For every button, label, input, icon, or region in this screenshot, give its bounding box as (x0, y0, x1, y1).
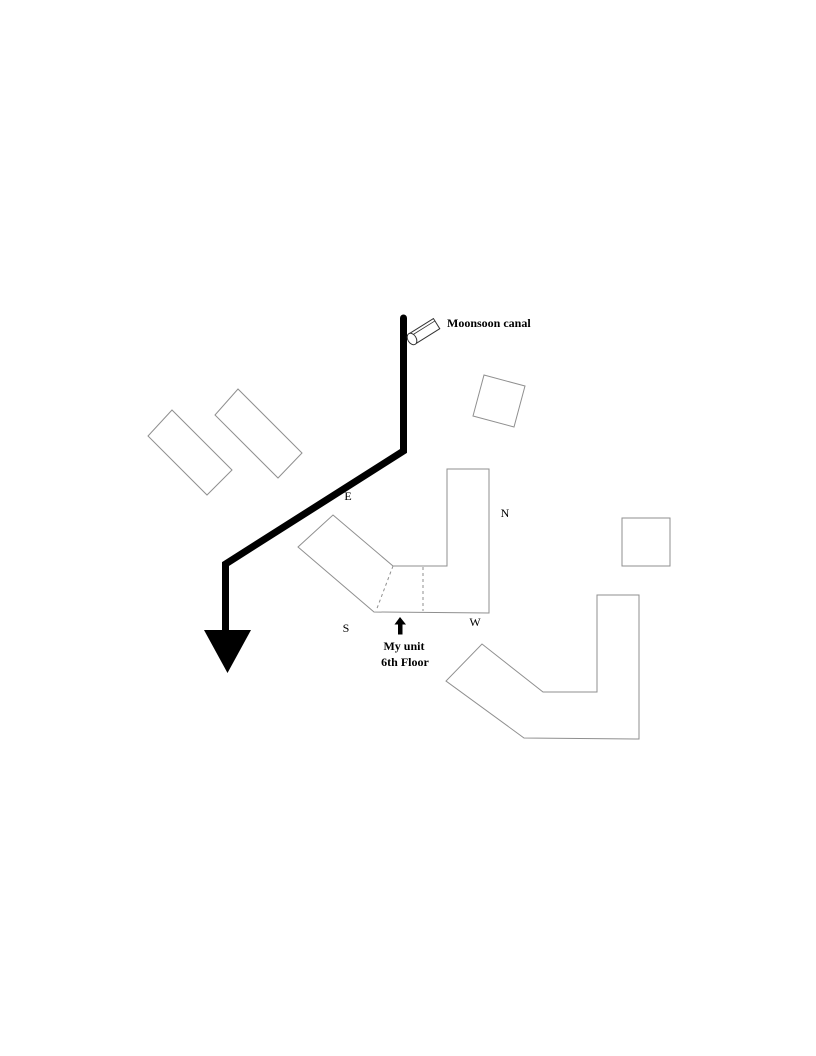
compass-east-label: E (344, 489, 351, 503)
compass-west-label: W (469, 615, 481, 629)
down-arrowhead-icon (204, 630, 251, 673)
building-left-1 (148, 410, 232, 495)
document-page: Moonsoon canal E N S W My unit 6th Floor (0, 0, 816, 1056)
unit-label-line2: 6th Floor (381, 655, 429, 669)
compass-north-label: N (501, 506, 510, 520)
building-my-unit (298, 469, 489, 613)
building-left-2 (215, 389, 302, 478)
building-small-square (622, 518, 670, 566)
up-arrow-icon (395, 617, 407, 635)
cylinder-3d-icon (405, 318, 440, 346)
site-map-drawing: Moonsoon canal E N S W My unit 6th Floor (0, 0, 816, 1056)
unit-label-line1: My unit (383, 639, 424, 653)
building-tilted-square (473, 375, 525, 427)
canal-label: Moonsoon canal (447, 316, 531, 330)
compass-south-label: S (343, 621, 350, 635)
